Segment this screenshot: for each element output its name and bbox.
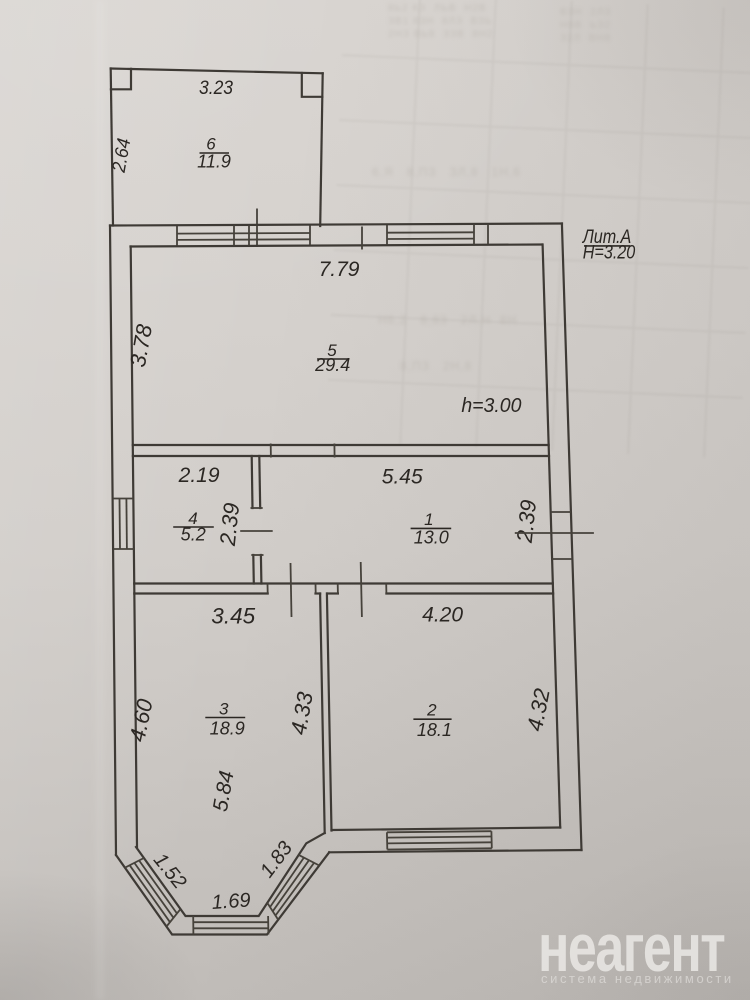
svg-text:1.69: 1.69	[211, 889, 251, 914]
svg-text:2: 2	[426, 701, 437, 720]
svg-text:5.45: 5.45	[382, 466, 423, 489]
svg-text:3.23: 3.23	[199, 76, 233, 98]
svg-text:2.39: 2.39	[512, 499, 541, 545]
svg-text:3: 3	[219, 699, 229, 718]
svg-text:h=3.00: h=3.00	[461, 395, 521, 418]
svg-text:Н=3.20: Н=3.20	[583, 241, 636, 263]
svg-text:1.52: 1.52	[149, 849, 191, 893]
svg-text:7.79: 7.79	[319, 258, 360, 281]
svg-text:5.2: 5.2	[181, 525, 206, 545]
svg-text:18.1: 18.1	[417, 720, 452, 740]
svg-text:13.0: 13.0	[414, 528, 449, 548]
svg-text:5.84: 5.84	[209, 769, 239, 813]
svg-text:1: 1	[424, 510, 433, 529]
svg-text:4.32: 4.32	[522, 686, 555, 733]
svg-text:3.45: 3.45	[211, 604, 255, 629]
svg-text:2.64: 2.64	[107, 136, 135, 174]
svg-text:4.20: 4.20	[422, 604, 463, 627]
svg-text:2.19: 2.19	[178, 464, 220, 487]
svg-text:3.78: 3.78	[125, 322, 157, 369]
svg-text:18.9: 18.9	[210, 718, 245, 738]
svg-text:29.4: 29.4	[314, 355, 350, 375]
svg-text:11.9: 11.9	[197, 152, 231, 172]
svg-text:2.39: 2.39	[215, 502, 244, 548]
svg-text:4.33: 4.33	[286, 689, 318, 736]
svg-text:4.60: 4.60	[124, 696, 158, 744]
